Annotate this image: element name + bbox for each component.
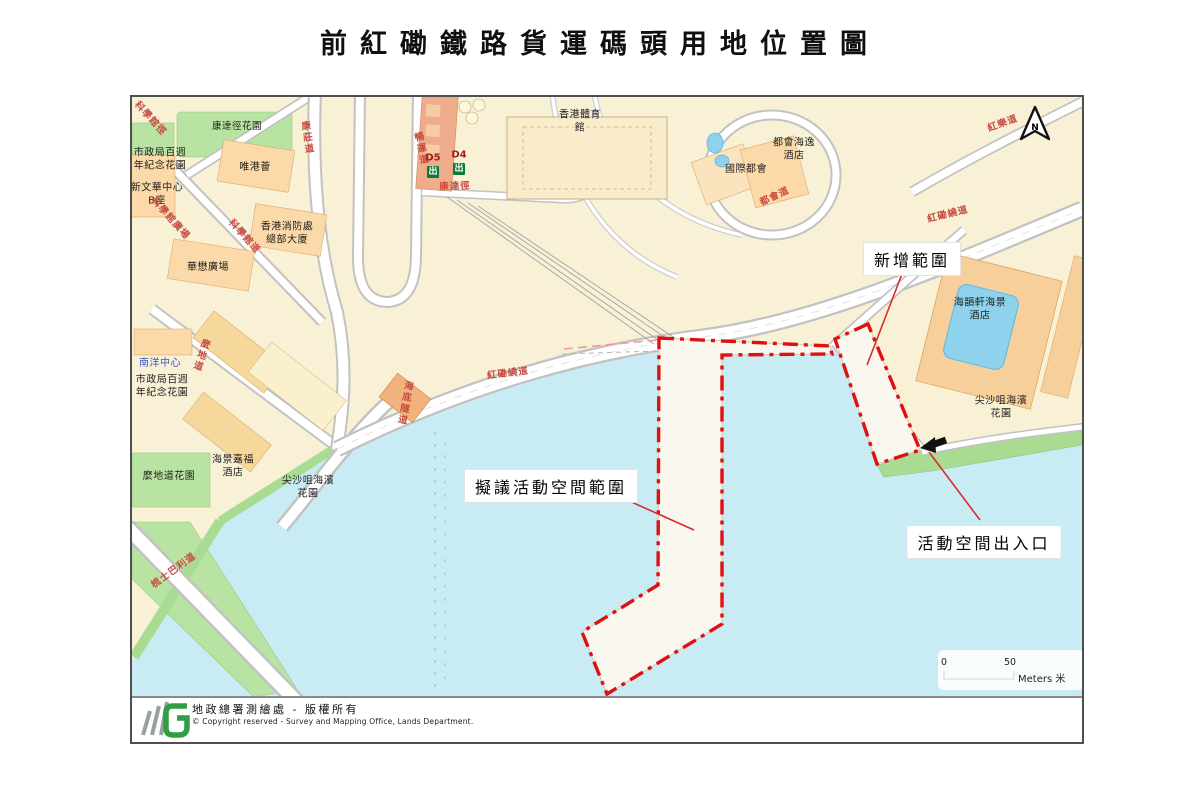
station-exit-icon-d5: 出 <box>427 166 439 178</box>
page-title: 前紅磡鐵路貨運碼頭用地位置圖 <box>0 22 1200 61</box>
credit-chinese: 地政總署測繪處 - 版權所有 <box>192 701 359 717</box>
map-graphics <box>132 97 1082 742</box>
scale-unit: Meters 米 <box>1018 670 1065 685</box>
annotation-new-area: 新增範圍 <box>863 242 961 276</box>
annotation-proposed-space: 擬議活動空間範圍 <box>464 469 638 503</box>
station-exit-icon-d4: 出 <box>453 163 465 175</box>
station-exit-label-d5: D5 <box>425 153 440 164</box>
page: 前紅磡鐵路貨運碼頭用地位置圖 <box>0 0 1200 800</box>
scale-end: 50 <box>1004 657 1016 668</box>
scale-start: 0 <box>941 657 947 668</box>
annotation-entrance: 活動空間出入口 <box>906 525 1061 559</box>
map-canvas: 科學館徑 康達徑花園 市政局百週 年紀念花園 新文華中心 B座 唯港薈 科學館廣… <box>130 95 1084 744</box>
north-arrow-letter: N <box>1031 123 1039 133</box>
credit-english: © Copyright reserved - Survey and Mappin… <box>192 717 473 726</box>
station-exit-label-d4: D4 <box>451 150 466 161</box>
